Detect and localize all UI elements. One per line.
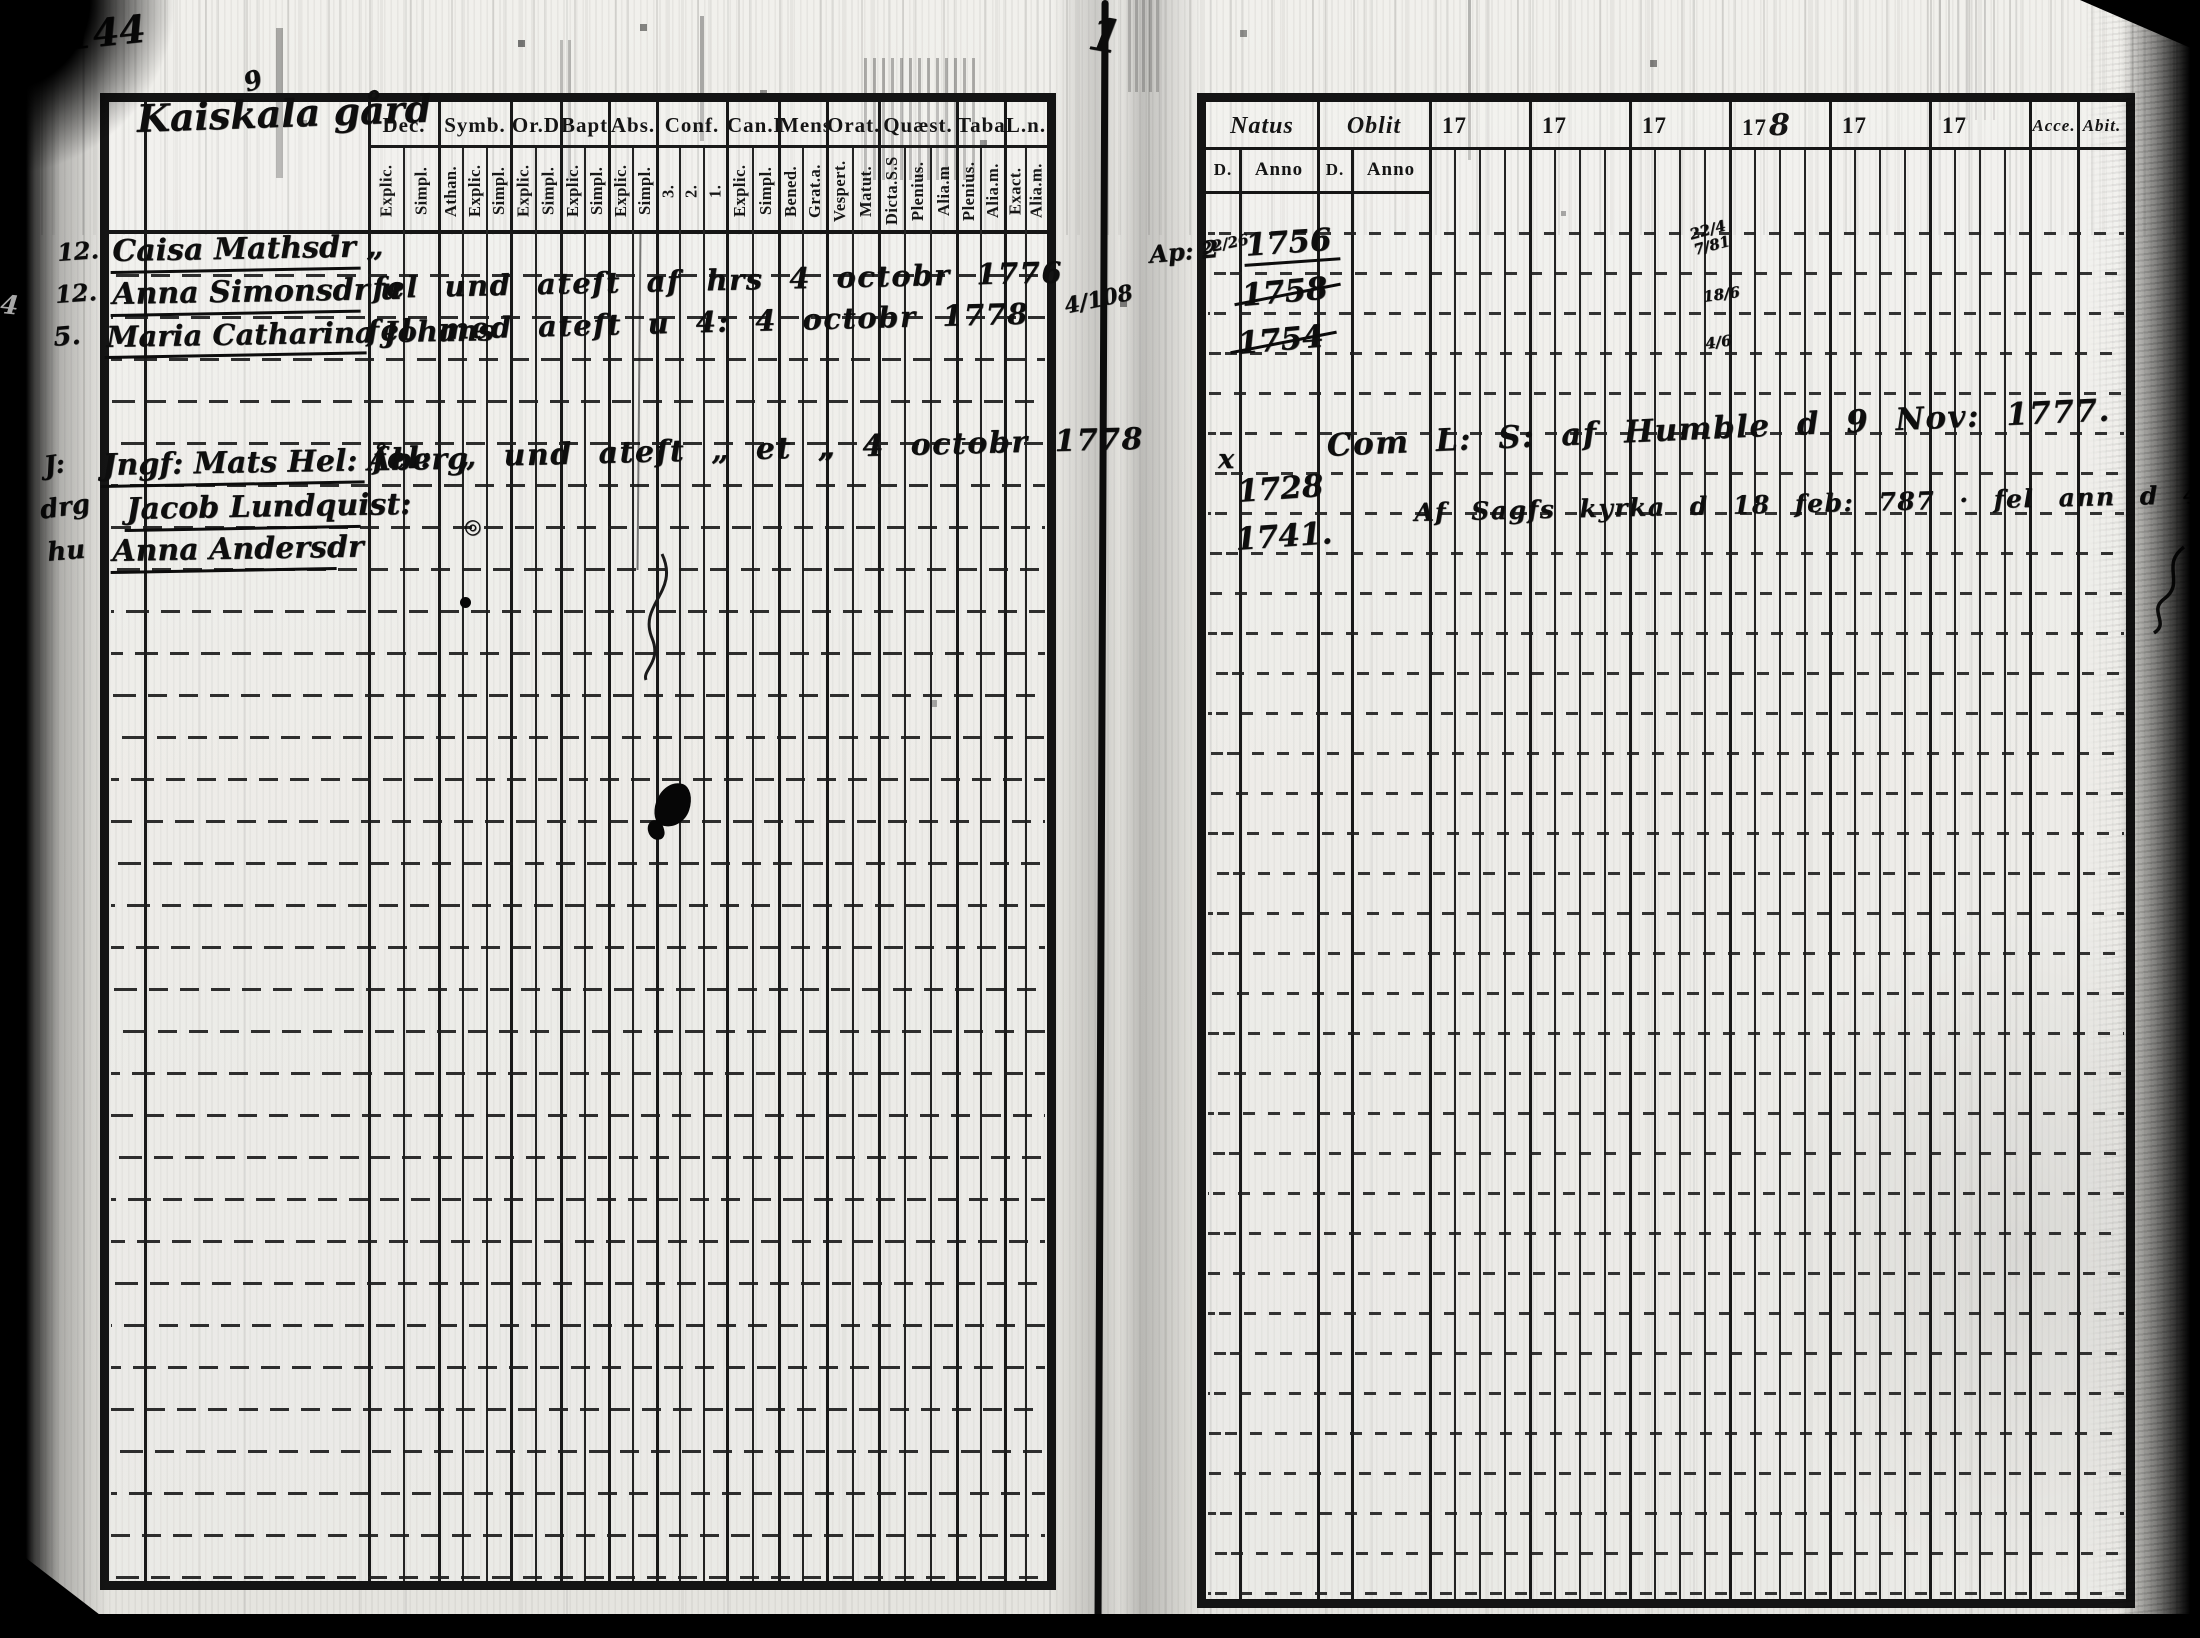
- row-line: [111, 736, 1045, 739]
- subcolumn-label: 1.: [704, 152, 727, 230]
- subcolumn-label: 3.: [657, 152, 680, 230]
- row-line: [1208, 1272, 2124, 1275]
- row-line: [111, 1366, 1045, 1369]
- natus-year: 1756: [1242, 221, 1341, 267]
- year-column-header: 17: [1630, 102, 1730, 150]
- subcolumn-label: D.: [1206, 150, 1240, 190]
- column-line: [1729, 102, 1732, 1599]
- row-line: [1208, 872, 2124, 875]
- row-line: [1208, 1352, 2124, 1355]
- row-line: [1208, 1032, 2124, 1035]
- row-line: [111, 862, 1045, 865]
- folio-number: 144: [64, 6, 148, 59]
- year-column-header: 17: [1930, 102, 2030, 150]
- natus-year: 1741.: [1234, 515, 1333, 558]
- row-line: [1208, 1552, 2124, 1555]
- row-line: [1208, 1472, 2124, 1475]
- entry-margin: 12.: [54, 277, 98, 309]
- row-line: [111, 778, 1045, 781]
- subcolumn-label: Simpl.: [753, 152, 779, 230]
- row-line: [1208, 912, 2124, 915]
- column-line: [2029, 102, 2032, 1599]
- column-header: Taba.: [957, 102, 1005, 148]
- subcolumn-label: Explic.: [727, 152, 753, 230]
- natus-day: x: [1218, 444, 1234, 475]
- subcolumn-label: Athan.: [439, 152, 463, 230]
- pen-flourish-tail: [2140, 545, 2190, 635]
- row-line: [1208, 752, 2124, 755]
- subcolumn-label: Simpl.: [487, 152, 511, 230]
- row-line: [111, 1450, 1045, 1453]
- year-column-header: 17: [1430, 102, 1530, 150]
- row-line: [1208, 1312, 2124, 1315]
- column-line: [1929, 102, 1932, 1599]
- subcolumn-label: Vespert.: [827, 152, 853, 230]
- column-header: Oblit: [1318, 102, 1430, 150]
- year-header-printed: 17: [1842, 113, 1867, 138]
- row-line: [111, 904, 1045, 907]
- entry-margin: drg: [38, 489, 92, 526]
- column-header: Can.D: [727, 102, 779, 148]
- year-header-printed: 17: [1542, 113, 1567, 138]
- entry-name: Anna Simonsdr u: [110, 273, 361, 317]
- entry-name: Maria Catharina Johans: [104, 315, 367, 359]
- year-column-header: 17: [1830, 102, 1930, 150]
- year-header-printed: 17: [1442, 113, 1467, 138]
- edge-stray-mark: 4: [0, 290, 20, 322]
- subcolumn-label: Matut.: [853, 152, 879, 230]
- subcolumn-label: Simpl.: [536, 152, 561, 230]
- ring-mark: ◎: [464, 514, 481, 538]
- gutter-note-left: 4/108: [1062, 280, 1135, 320]
- row-line: [1208, 592, 2124, 595]
- row-line: [1208, 1392, 2124, 1395]
- subcolumn-label: Simpl.: [633, 152, 657, 230]
- row-line: [1208, 232, 2124, 235]
- column-header: Symb.: [439, 102, 511, 148]
- right-page-table: 1717171781717NatusOblitD.AnnoD.AnnoAcce.…: [1197, 93, 2135, 1608]
- subcolumn-label: Simpl.: [404, 152, 439, 230]
- year-header-printed: 17: [1742, 115, 1767, 140]
- subcolumn-label: Plenius.: [957, 152, 981, 230]
- row-line: [1208, 1432, 2124, 1435]
- row-line: [1208, 672, 2124, 675]
- column-line: [1629, 102, 1632, 1599]
- subcolumn-label: Explic.: [561, 152, 585, 230]
- subcolumn-label: 2.: [680, 152, 703, 230]
- row-line: [111, 400, 1045, 403]
- row-line: [111, 358, 1045, 361]
- ink-dot: [460, 597, 471, 608]
- row-line: [1208, 472, 2124, 475]
- column-line: [1829, 102, 1832, 1599]
- row-line: [111, 1156, 1045, 1159]
- column-header: Abit.: [2078, 102, 2126, 150]
- column-header: Conf.: [657, 102, 727, 148]
- column-header: Acce.: [2030, 102, 2078, 150]
- row-line: [111, 1198, 1045, 1201]
- subcolumn-label: Alia.m: [931, 152, 957, 230]
- entry-margin: hu: [46, 535, 86, 568]
- row-line: [1208, 272, 2124, 275]
- column-header: Bapt.: [561, 102, 609, 148]
- subcolumn-label: D.: [1318, 150, 1352, 190]
- year-header-handwritten: 8: [1769, 108, 1791, 143]
- entry-name: Jacob Lundquist:: [124, 488, 361, 532]
- row-line: [111, 946, 1045, 949]
- subcolumn-label: Simpl.: [585, 152, 609, 230]
- column-header: Mens.: [779, 102, 827, 148]
- column-line: [2077, 102, 2080, 1599]
- column-line: [1429, 102, 1432, 1599]
- row-line: [111, 1114, 1045, 1117]
- row-line: [1208, 1152, 2124, 1155]
- row-line: [111, 1492, 1045, 1495]
- ink-squiggle: [632, 552, 692, 687]
- entry-margin: 12.: [56, 235, 100, 267]
- subcolumn-label: Alia.m.: [1026, 152, 1047, 230]
- entry-name: Caisa Mathsdr „: [110, 230, 361, 274]
- scanned-parish-register-spread: 144 Kaiskala gård 9 1 4/108 Ap: 2 Dec.Ex…: [0, 0, 2200, 1638]
- subcolumn-label: Explic.: [369, 152, 404, 230]
- column-header: Abs.: [609, 102, 657, 148]
- row-line: [111, 1240, 1045, 1243]
- natus-year: 1728: [1236, 468, 1325, 510]
- row-line: [1208, 712, 2124, 715]
- subcolumn-label: Anno: [1240, 150, 1318, 190]
- row-line: [111, 1282, 1045, 1285]
- subcolumn-label: Explic.: [511, 152, 536, 230]
- subcolumn-label: Dicta.S.S: [879, 152, 905, 230]
- entry-name: Jngf: Mats Hel: Åberg: [100, 443, 365, 488]
- row-line: [111, 610, 1045, 613]
- subcolumn-label: Alia.m.: [981, 152, 1005, 230]
- row-line: [1208, 312, 2124, 315]
- natus-year: 1758: [1240, 270, 1329, 313]
- year-column-header: 17: [1530, 102, 1630, 150]
- row-line: [1208, 832, 2124, 835]
- row-line: [1208, 552, 2124, 555]
- row-line: [111, 652, 1045, 655]
- row-line: [1208, 1512, 2124, 1515]
- row-line: [1208, 1232, 2124, 1235]
- row-line: [1208, 632, 2124, 635]
- column-header: L.n.: [1005, 102, 1047, 148]
- year-mark: 4/6: [1704, 331, 1733, 352]
- row-line: [1208, 1072, 2124, 1075]
- row-line: [111, 1576, 1045, 1579]
- row-line: [1208, 792, 2124, 795]
- subcolumn-label: Explic.: [609, 152, 633, 230]
- entry-name: Anna Andersdr: [110, 530, 337, 574]
- row-line: [111, 988, 1045, 991]
- subcolumn-label: Explic.: [463, 152, 487, 230]
- entry-margin: J:: [42, 449, 67, 482]
- subcolumn-label: Exact.: [1005, 152, 1026, 230]
- row-line: [1208, 1592, 2124, 1595]
- column-header: Quæst.: [879, 102, 957, 148]
- row-line: [111, 1030, 1045, 1033]
- row-line: [1208, 952, 2124, 955]
- year-column-header: 178: [1730, 102, 1830, 150]
- row-line: [1208, 1192, 2124, 1195]
- column-header: Or.D: [511, 102, 561, 148]
- subcolumn-label: Anno: [1352, 150, 1430, 190]
- row-line: [1208, 992, 2124, 995]
- row-line: [111, 1072, 1045, 1075]
- column-header: Orat.: [827, 102, 879, 148]
- row-line: [111, 1408, 1045, 1411]
- page-gutter-line: [1094, 0, 1108, 1638]
- column-line: [1529, 102, 1532, 1599]
- row-line: [1208, 1112, 2124, 1115]
- subcolumn-label: Grat.a.: [803, 152, 827, 230]
- row-line: [111, 1324, 1045, 1327]
- natus-year: 1754: [1236, 318, 1325, 361]
- row-line: [111, 1534, 1045, 1537]
- scan-edge-bottom: [0, 1614, 2200, 1638]
- entry-margin: 5.: [52, 321, 82, 353]
- row-line: [1208, 392, 2124, 395]
- row-line: [1208, 352, 2124, 355]
- year-header-printed: 17: [1942, 113, 1967, 138]
- subcolumn-label: Plenius.: [905, 152, 931, 230]
- column-header: Natus: [1206, 102, 1318, 150]
- subcolumn-label: Bened.: [779, 152, 803, 230]
- year-header-printed: 17: [1642, 113, 1667, 138]
- row-line: [111, 694, 1045, 697]
- row-line: [111, 820, 1045, 823]
